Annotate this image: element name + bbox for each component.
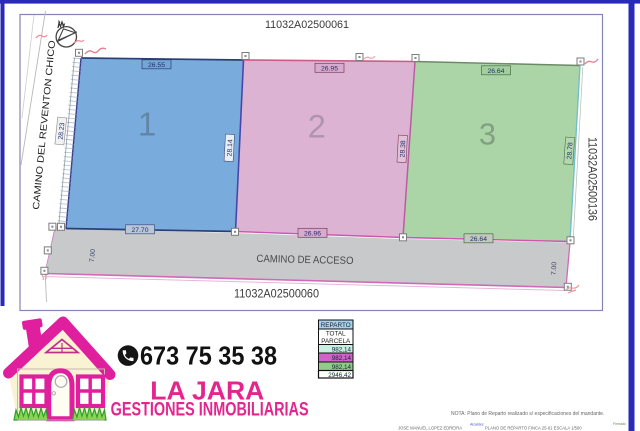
svg-text:673 75 35 38: 673 75 35 38 <box>140 340 277 370</box>
svg-text:7.00: 7.00 <box>551 262 559 276</box>
svg-text:Alcaldes: Alcaldes <box>470 423 484 427</box>
svg-text:26.55: 26.55 <box>148 62 165 69</box>
svg-text:TOTAL: TOTAL <box>326 331 346 338</box>
svg-text:982,14: 982,14 <box>332 364 352 371</box>
svg-text:28.38: 28.38 <box>399 140 407 158</box>
svg-text:982,14: 982,14 <box>332 355 352 362</box>
svg-text:CAMINO DE ACCESO: CAMINO DE ACCESO <box>256 253 353 267</box>
svg-text:3: 3 <box>479 118 496 152</box>
svg-text:7.00: 7.00 <box>89 248 97 262</box>
svg-text:982,14: 982,14 <box>332 346 352 353</box>
svg-text:28.14: 28.14 <box>227 139 235 157</box>
svg-text:REPARTO: REPARTO <box>321 322 351 329</box>
svg-text:Firmado: Firmado <box>613 422 626 426</box>
svg-text:PLANO DE REPARTO FINCA 25-61 E: PLANO DE REPARTO FINCA 25-61 ESCALA 1/50… <box>485 426 582 431</box>
svg-text:26.64: 26.64 <box>487 68 504 75</box>
svg-text:2946,42: 2946,42 <box>328 372 351 379</box>
svg-text:26.64: 26.64 <box>470 236 487 243</box>
svg-text:26.96: 26.96 <box>304 231 321 238</box>
svg-text:1: 1 <box>138 106 156 143</box>
svg-text:JOSE MANUEL LOPEZ EDREIRA: JOSE MANUEL LOPEZ EDREIRA <box>398 426 462 431</box>
svg-text:11032A02500136: 11032A02500136 <box>586 137 598 221</box>
svg-text:11032A02500060: 11032A02500060 <box>234 289 319 301</box>
svg-text:11032A02500061: 11032A02500061 <box>265 19 349 31</box>
svg-text:GESTIONES INMOBILIARIAS: GESTIONES INMOBILIARIAS <box>111 400 309 421</box>
svg-text:28.78: 28.78 <box>566 142 574 160</box>
svg-text:26.95: 26.95 <box>321 66 338 73</box>
svg-text:2: 2 <box>308 109 326 145</box>
svg-text:27.70: 27.70 <box>131 227 148 234</box>
svg-text:NOTA: Plano de Reparto realiza: NOTA: Plano de Reparto realizado s/ espe… <box>451 411 604 417</box>
